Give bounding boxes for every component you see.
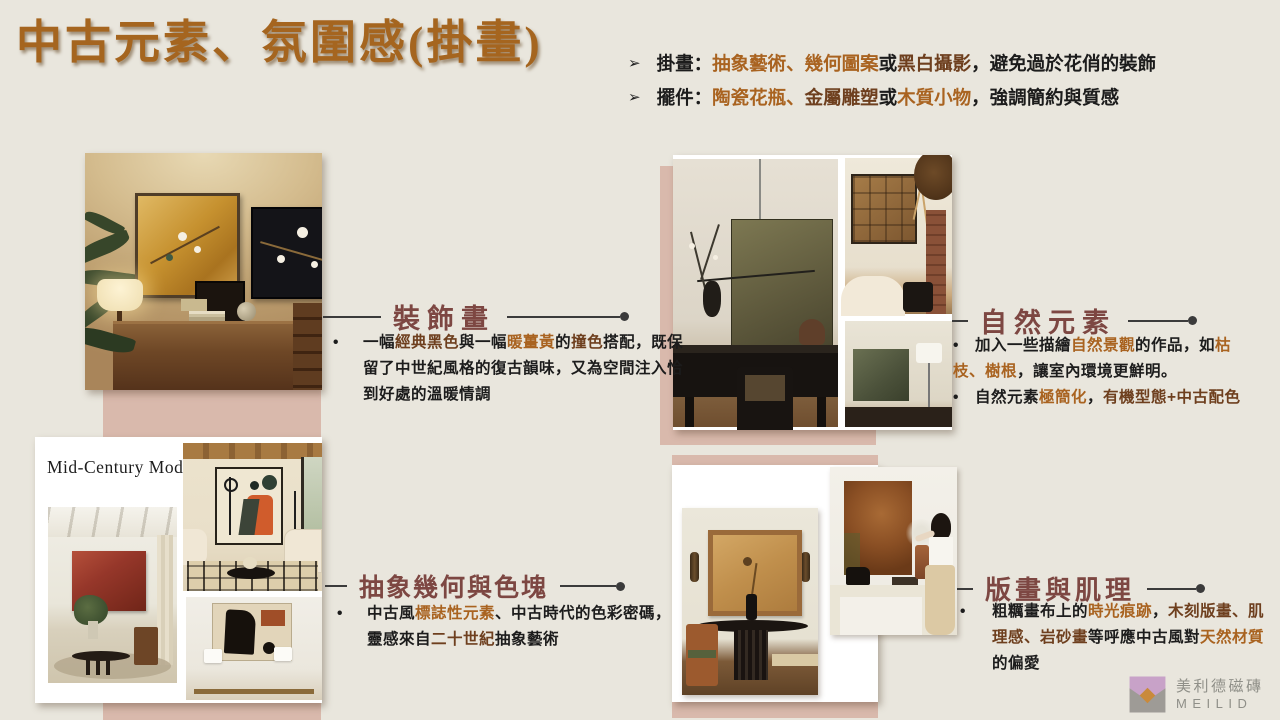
dried-flower	[743, 557, 752, 566]
vase-ornament	[243, 557, 257, 569]
table-lamp	[204, 649, 222, 663]
caption-dot	[1188, 316, 1197, 325]
text-segment: 撞色	[571, 334, 603, 351]
black-armchair	[903, 282, 933, 312]
blossom-dot	[194, 246, 201, 253]
caption-abstract-geometry: 抽象幾何與色塊	[325, 568, 625, 604]
text-segment: 的偏愛	[992, 655, 1040, 672]
caption-line	[323, 316, 381, 318]
textured-painting-photo	[830, 467, 957, 635]
glass-vase	[88, 621, 98, 639]
framed-print-room-photo	[682, 508, 818, 695]
blossom-dot	[311, 261, 318, 268]
curved-sofa	[841, 276, 905, 316]
body-decorative-painting: • 一幅經典黑色與一幅暖薑黃的撞色搭配，既保留了中世紀風格的復古韻味，又為空間注…	[333, 330, 693, 408]
text-segment: 或	[879, 53, 898, 74]
brand-name-cn: 美利德磁磚	[1176, 678, 1264, 696]
geometric-abstract-painting	[215, 467, 283, 545]
brand-name-en: MEILID	[1176, 696, 1264, 711]
body-abstract-geometry: • 中古風標誌性元素、中古時代的色彩密碼，靈感來自二十世紀抽象藝術	[337, 601, 677, 653]
body-paragraph: 粗糲畫布上的時光痕跡，木刻版畫、肌理感、岩砂畫等呼應中古風對天然材質的偏愛	[992, 599, 1272, 677]
text-segment: 的	[555, 334, 571, 351]
text-segment: 木質小物	[897, 87, 971, 108]
text-segment: 一幅	[363, 334, 395, 351]
geometric-art-room-photo	[183, 443, 322, 591]
intro-bullet-2-text: 擺件：陶瓷花瓶、金屬雕塑或木質小物，強調簡約與質感	[657, 81, 1120, 115]
text-segment: 中古風	[367, 605, 415, 622]
text-segment: ，	[1152, 603, 1168, 620]
caption-dot	[616, 582, 625, 591]
slatted-table-base	[734, 630, 768, 680]
branch-stroke	[150, 226, 220, 264]
text-segment: 經典黑色	[395, 334, 459, 351]
page-title: 中古元素、氛圍感(掛畫)	[16, 6, 543, 72]
blossom-dot	[277, 255, 285, 263]
woman-white-top	[929, 537, 953, 567]
text-segment: ，讓室內環境更鮮明。	[1017, 363, 1177, 380]
round-table	[72, 651, 130, 661]
wood-chair	[686, 624, 718, 686]
blossom-dot	[297, 227, 308, 238]
decorative-paintings-image	[85, 153, 322, 390]
text-segment: 掛畫：	[657, 53, 713, 74]
text-segment: 抽象藝術、幾何圖案	[712, 53, 879, 74]
text-segment: 或	[879, 87, 898, 108]
floor-lamp-pole	[928, 363, 930, 409]
book-stack	[189, 311, 225, 321]
text-segment: 有機型態+中古配色	[1103, 389, 1241, 406]
text-segment: ，避免過於花俏的裝飾	[971, 53, 1156, 74]
text-segment: 擺件：	[657, 87, 713, 108]
bullet-dot: •	[953, 337, 975, 354]
caption-dot	[620, 312, 629, 321]
wall-sconce	[690, 552, 699, 582]
drawer-chest	[293, 303, 322, 390]
table-legs	[86, 659, 116, 675]
slide: 中古元素、氛圍感(掛畫) ➢ 掛畫：抽象藝術、幾何圖案或黑白攝影，避免過於花俏的…	[0, 0, 1280, 720]
body-prints-texture: • 粗糲畫布上的時光痕跡，木刻版畫、肌理感、岩砂畫等呼應中古風對天然材質的偏愛	[960, 599, 1272, 677]
text-segment: 抽象藝術	[495, 631, 559, 648]
bullet-dot: •	[953, 389, 975, 406]
text-segment: 粗糲畫布上的	[992, 603, 1088, 620]
text-segment: 的作品，如	[1135, 337, 1215, 354]
text-segment: 標誌性元素	[415, 605, 495, 622]
tissue-box	[181, 299, 207, 311]
text-segment: ，強調簡約與質感	[971, 87, 1119, 108]
arrow-bullet-icon: ➢	[628, 47, 641, 81]
art-rust-block	[261, 610, 285, 626]
branch-stroke	[260, 241, 322, 263]
grid-branch-artwork	[851, 174, 917, 244]
wall-sconce	[801, 552, 810, 582]
text-segment: 極簡化	[1039, 389, 1087, 406]
branch-twig	[700, 224, 720, 280]
black-painting	[251, 207, 322, 299]
brass-console	[194, 689, 314, 694]
intro-bullet-1: ➢ 掛畫：抽象藝術、幾何圖案或黑白攝影，避免過於花俏的裝飾	[628, 47, 1156, 81]
text-segment: 自然元素	[975, 389, 1039, 406]
red-painting-room-photo	[48, 507, 177, 683]
text-segment: 金屬雕塑	[805, 87, 879, 108]
woman-hair	[931, 513, 951, 540]
green-abstract-painting	[853, 349, 909, 401]
mushroom-lamp	[799, 319, 825, 345]
intro-bullets: ➢ 掛畫：抽象藝術、幾何圖案或黑白攝影，避免過於花俏的裝飾 ➢ 擺件：陶瓷花瓶、…	[628, 47, 1156, 115]
text-segment: 與一幅	[459, 334, 507, 351]
woman-beige-skirt	[925, 565, 955, 635]
caption-line	[1128, 320, 1188, 322]
text-segment: 陶瓷花瓶、	[712, 87, 805, 108]
floor-lamp-shade	[916, 343, 942, 363]
globe-ornament	[237, 302, 256, 321]
black-chair	[737, 367, 793, 430]
dark-console	[845, 407, 952, 427]
caption-line	[507, 316, 620, 318]
body-paragraph: •加入一些描繪自然景觀的作品，如枯枝、樹根，讓室內環境更鮮明。	[953, 333, 1255, 385]
bullet-dot: •	[960, 599, 992, 677]
caption-dot	[1196, 584, 1205, 593]
bullet-dot: •	[337, 601, 367, 653]
desk-leg	[817, 397, 826, 427]
art-circle	[250, 481, 259, 490]
text-segment: 暖薑黃	[507, 334, 555, 351]
art-black-blob	[224, 609, 256, 655]
cane-backrest	[745, 375, 785, 401]
green-seat-cushion	[688, 650, 716, 658]
body-paragraph: •自然元素極簡化，有機型態+中古配色	[953, 385, 1255, 411]
text-segment: 加入一些描繪	[975, 337, 1071, 354]
green-painting-photo	[845, 321, 952, 427]
rust-textured-painting	[844, 481, 912, 575]
text-segment: 時光痕跡	[1088, 603, 1152, 620]
natural-elements-collage	[673, 155, 952, 430]
living-room-photo	[845, 158, 952, 314]
blossom-dot	[713, 255, 718, 260]
curtain	[157, 535, 173, 665]
book-stack	[892, 577, 918, 585]
text-segment: 等呼應中古風對	[1088, 629, 1200, 646]
caption-line	[560, 585, 616, 587]
intro-bullet-2: ➢ 擺件：陶瓷花瓶、金屬雕塑或木質小物，強調簡約與質感	[628, 81, 1156, 115]
meilid-logo-icon	[1128, 675, 1167, 714]
caption-title: 抽象幾何與色塊	[347, 568, 560, 604]
blossom-dot	[178, 232, 187, 241]
black-sculpture	[846, 567, 870, 585]
body-paragraph: 中古風標誌性元素、中古時代的色彩密碼，靈感來自二十世紀抽象藝術	[367, 601, 677, 653]
desk-room-photo	[673, 159, 838, 427]
body-paragraph: 一幅經典黑色與一幅暖薑黃的撞色搭配，既保留了中世紀風格的復古韻味，又為空間注入恰…	[363, 330, 693, 408]
intro-bullet-1-text: 掛畫：抽象藝術、幾何圖案或黑白攝影，避免過於花俏的裝飾	[657, 47, 1157, 81]
wood-chair	[134, 627, 158, 665]
art-circle	[262, 475, 277, 490]
mid-century-collage: Mid-Century Modern	[35, 437, 322, 703]
leaf-dot	[166, 254, 173, 261]
floor-lamp-shade	[97, 279, 143, 311]
arrow-bullet-icon: ➢	[628, 81, 641, 115]
logo-text: 美利德磁磚 MEILID	[1176, 678, 1264, 711]
text-segment: 黑白攝影	[897, 53, 971, 74]
console-opening	[840, 597, 922, 635]
caption-line	[1147, 588, 1196, 590]
table-lamp	[274, 647, 292, 661]
sculpture-vase	[703, 281, 721, 317]
black-vase	[746, 594, 757, 620]
console-art-photo	[186, 597, 322, 700]
cream-console	[830, 585, 932, 635]
caption-line	[325, 585, 347, 587]
bench	[772, 654, 818, 666]
sofa-left	[183, 529, 207, 565]
ceiling-beams	[48, 507, 177, 537]
caption-line	[957, 588, 973, 590]
text-segment: 天然材質	[1200, 629, 1264, 646]
caption-line	[952, 320, 968, 322]
bullet-dot: •	[333, 330, 363, 408]
text-segment: ，	[1087, 389, 1103, 406]
wood-sideboard	[113, 321, 293, 390]
body-natural-elements: •加入一些描繪自然景觀的作品，如枯枝、樹根，讓室內環境更鮮明。 •自然元素極簡化…	[953, 333, 1255, 411]
blossom-dot	[689, 243, 695, 249]
art-ring	[224, 478, 238, 492]
text-segment: 自然景觀	[1071, 337, 1135, 354]
brand-logo: 美利德磁磚 MEILID	[1128, 675, 1264, 714]
text-segment: 二十世紀	[431, 631, 495, 648]
